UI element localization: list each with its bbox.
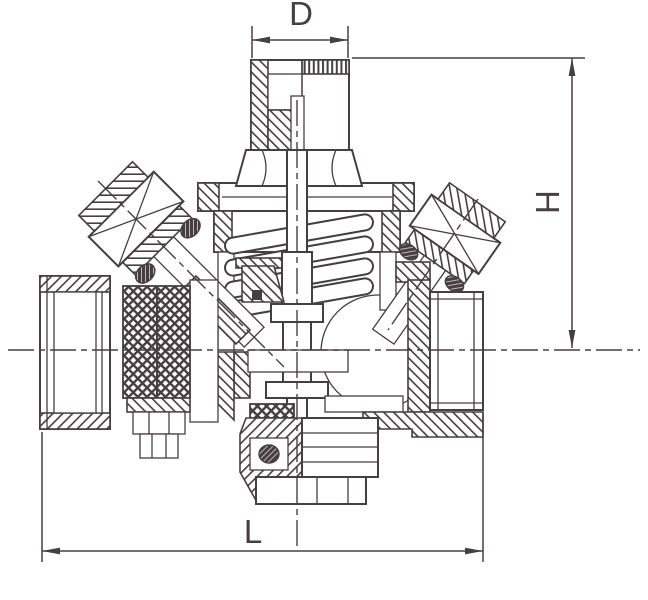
body-wall-lower-left [218, 352, 234, 420]
label-H: H [529, 190, 566, 214]
union-nut [123, 280, 218, 458]
arrowhead-top [569, 58, 576, 76]
arrowhead-bottom [569, 330, 576, 348]
drawing-canvas: D H L [0, 0, 648, 600]
label-D: D [289, 0, 313, 32]
left-port [40, 276, 110, 429]
body-flange-lower-right [363, 412, 483, 437]
valve-cross-section-drawing: D H L [0, 0, 648, 600]
arrowhead-left [42, 548, 60, 555]
bottom-plug [240, 404, 378, 504]
o-ring [259, 445, 279, 463]
dimension-D: D [252, 0, 348, 58]
arrowhead-right [465, 548, 483, 555]
seal-ring [252, 290, 262, 300]
arrowhead-right [330, 37, 348, 44]
label-L: L [244, 513, 262, 550]
seal-cup [242, 266, 284, 302]
arrowhead-left [252, 37, 270, 44]
